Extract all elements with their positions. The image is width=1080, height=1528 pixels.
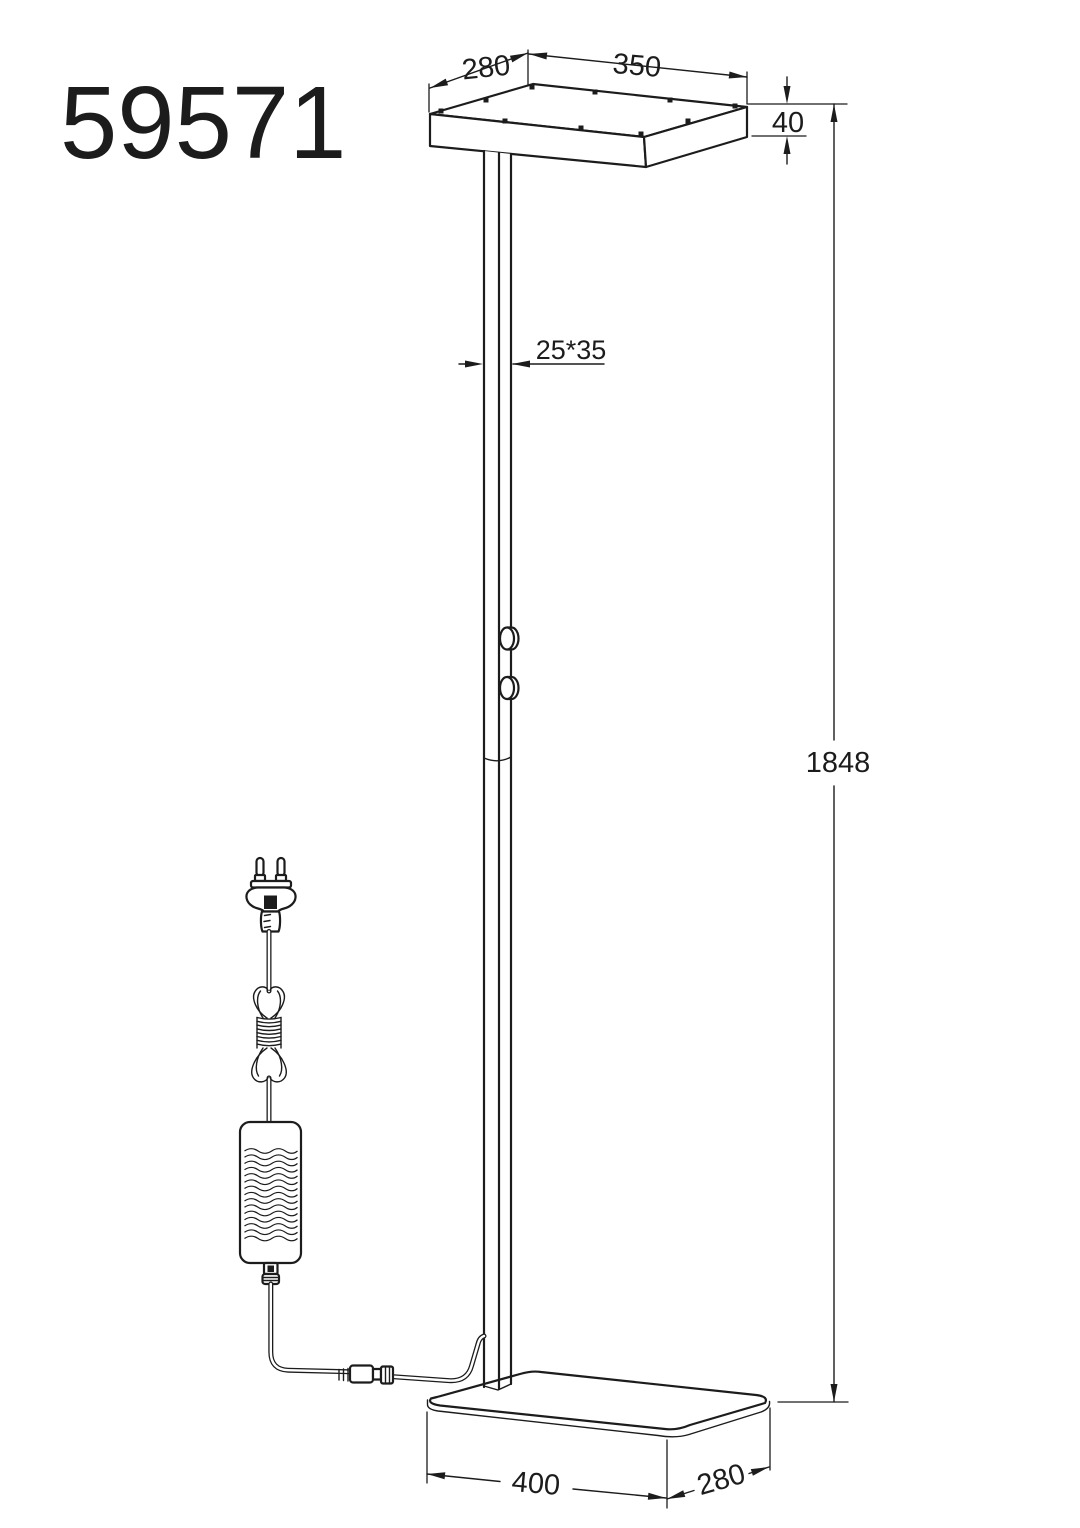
pole-fill bbox=[484, 151, 511, 1390]
dc-connector bbox=[339, 1366, 393, 1384]
model-number: 59571 bbox=[60, 65, 346, 180]
power-plug bbox=[246, 858, 295, 932]
adapter-outlet-pin bbox=[268, 1266, 275, 1273]
plug-window bbox=[264, 896, 277, 910]
dim-total-height-label: 1848 bbox=[806, 747, 871, 779]
base-top-face bbox=[430, 1372, 766, 1430]
dim-pole-section: 25*35 bbox=[459, 335, 606, 368]
dc-connector-sleeve bbox=[381, 1367, 393, 1384]
cable-coil bbox=[252, 987, 286, 1082]
dim-head-width-label: 350 bbox=[611, 48, 662, 84]
lamp-base bbox=[428, 1372, 770, 1437]
dc-connector-barrel bbox=[350, 1366, 373, 1383]
dim-head-height-label: 40 bbox=[772, 107, 804, 139]
power-cable-lower bbox=[271, 1284, 484, 1381]
lamp-pole bbox=[484, 151, 511, 1390]
dc-connector-neck bbox=[373, 1369, 381, 1380]
power-adapter bbox=[240, 1122, 301, 1284]
dimmer-knob-top bbox=[500, 628, 519, 650]
coil-rings bbox=[257, 1018, 281, 1046]
dim-base-width-label: 400 bbox=[510, 1466, 561, 1502]
base-side-face bbox=[428, 1400, 770, 1437]
dim-base-depth-label: 280 bbox=[694, 1458, 749, 1502]
technical-drawing-page: 59571 bbox=[0, 0, 1080, 1528]
dimmer-knob-bottom bbox=[500, 677, 519, 699]
dim-total-height: 1848 bbox=[778, 104, 870, 1402]
dim-pole-section-label: 25*35 bbox=[536, 335, 607, 365]
plug-pins bbox=[255, 858, 286, 881]
floor-lamp-drawing: 59571 bbox=[0, 0, 1080, 1528]
lamp-head bbox=[430, 84, 747, 167]
dim-base-depth: 280 bbox=[667, 1408, 770, 1502]
dim-head-depth-label: 280 bbox=[460, 50, 511, 87]
